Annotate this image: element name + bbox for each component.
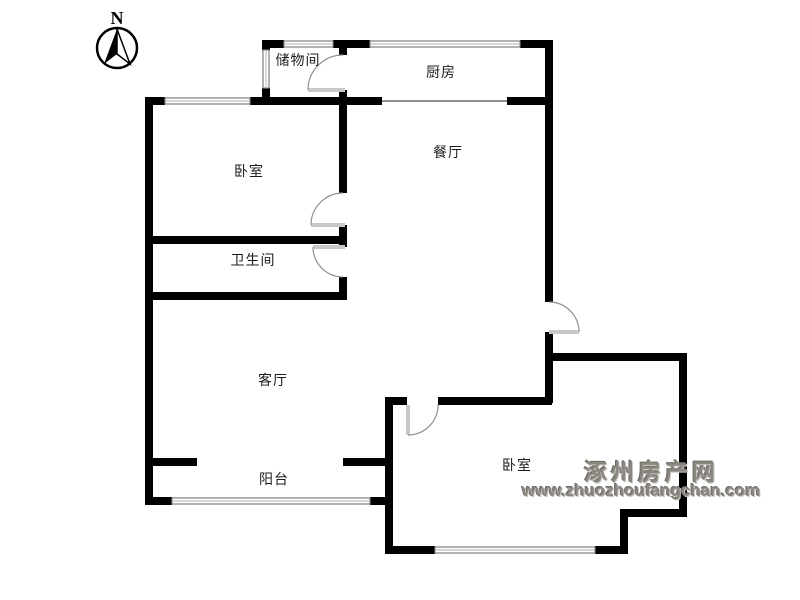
wall-segment: [545, 40, 553, 100]
wall-segment: [595, 546, 624, 554]
room-label-bedroom-right: 卧室: [502, 455, 532, 475]
room-label-balcony: 阳台: [259, 469, 289, 489]
storage-top-window: [284, 41, 333, 47]
watermark-site-url: www.zhuozhoufangchan.com: [522, 481, 760, 501]
entry-door: [549, 302, 579, 332]
room-label-bathroom: 卫生间: [231, 250, 276, 270]
bathroom-door: [313, 247, 345, 277]
wall-segment: [385, 397, 393, 554]
floorplan-drawing: N: [0, 0, 800, 600]
wall-segment: [145, 292, 347, 300]
bedroom-right-window: [435, 547, 595, 553]
wall-segment: [620, 509, 687, 517]
wall-segment: [620, 509, 628, 554]
room-label-living: 客厅: [258, 370, 288, 390]
wall-segment: [145, 97, 153, 505]
floorplan-page: N 储物间 厨房 卧室 餐厅 卫生间 客厅 阳台 卧室 涿州房产网 www.zh…: [0, 0, 800, 600]
wall-segment: [339, 40, 347, 55]
room-label-dining: 餐厅: [433, 142, 463, 162]
bedroom-top-door: [311, 193, 345, 225]
wall-segment: [545, 97, 553, 302]
room-label-kitchen: 厨房: [426, 62, 456, 82]
bedroom-top-window: [165, 98, 250, 104]
compass-needle-dark: [104, 29, 117, 64]
wall-segment: [339, 90, 347, 193]
wall-segment: [545, 332, 553, 403]
balcony-window: [172, 498, 370, 504]
wall-segment: [145, 236, 347, 244]
wall-segment: [339, 225, 347, 247]
wall-segment: [333, 40, 370, 48]
kitchen-top-window: [370, 41, 520, 47]
wall-segment: [438, 397, 552, 405]
compass-needle-light: [117, 29, 130, 64]
wall-segment: [262, 40, 270, 50]
room-label-storage: 储物间: [276, 50, 321, 70]
north-compass: N: [97, 8, 137, 68]
compass-north-label: N: [111, 8, 124, 28]
storage-left-window: [263, 50, 269, 88]
wall-segment: [339, 277, 347, 300]
wall-segment: [545, 353, 687, 361]
doors: [308, 55, 579, 435]
bedroom-right-door: [408, 405, 438, 435]
wall-segment: [262, 88, 270, 105]
room-label-bedroom-top: 卧室: [234, 161, 264, 181]
